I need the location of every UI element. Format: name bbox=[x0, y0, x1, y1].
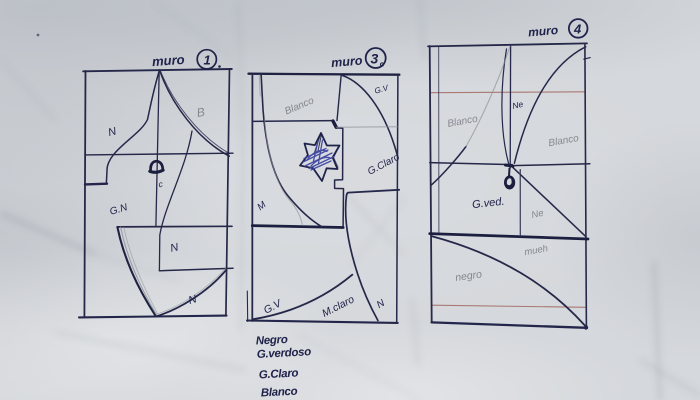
svg-text:Blanco: Blanco bbox=[283, 95, 316, 117]
svg-text:muro: muro bbox=[528, 23, 559, 40]
svg-text:G.Claro: G.Claro bbox=[259, 367, 299, 381]
svg-text:N: N bbox=[107, 125, 118, 139]
svg-text:Ne: Ne bbox=[530, 208, 544, 221]
svg-text:Blanco: Blanco bbox=[548, 133, 580, 149]
svg-text:mueh: mueh bbox=[524, 243, 549, 258]
svg-text:1: 1 bbox=[204, 53, 211, 68]
svg-text:G.Claro: G.Claro bbox=[366, 152, 402, 178]
svg-text:muro: muro bbox=[152, 52, 186, 69]
svg-text:G.V: G.V bbox=[373, 83, 389, 96]
svg-text:N: N bbox=[375, 297, 387, 311]
svg-text:negro: negro bbox=[454, 268, 482, 284]
svg-text:Blanco: Blanco bbox=[447, 114, 479, 130]
svg-text:muro: muro bbox=[331, 53, 364, 70]
svg-text:4: 4 bbox=[573, 22, 582, 37]
svg-text:N: N bbox=[169, 241, 179, 254]
svg-text:M: M bbox=[255, 199, 268, 213]
svg-text:G.N: G.N bbox=[109, 202, 130, 218]
svg-text:B: B bbox=[196, 105, 206, 120]
svg-text:G.ved.: G.ved. bbox=[472, 196, 505, 211]
svg-text:3: 3 bbox=[371, 51, 379, 67]
svg-text:Blanco: Blanco bbox=[261, 386, 298, 400]
svg-text:G.verdoso: G.verdoso bbox=[257, 346, 312, 361]
svg-text:Negro: Negro bbox=[256, 334, 289, 348]
svg-text:Ne: Ne bbox=[511, 99, 524, 111]
svg-text:c: c bbox=[158, 179, 165, 190]
svg-text:M.claro: M.claro bbox=[320, 293, 356, 319]
